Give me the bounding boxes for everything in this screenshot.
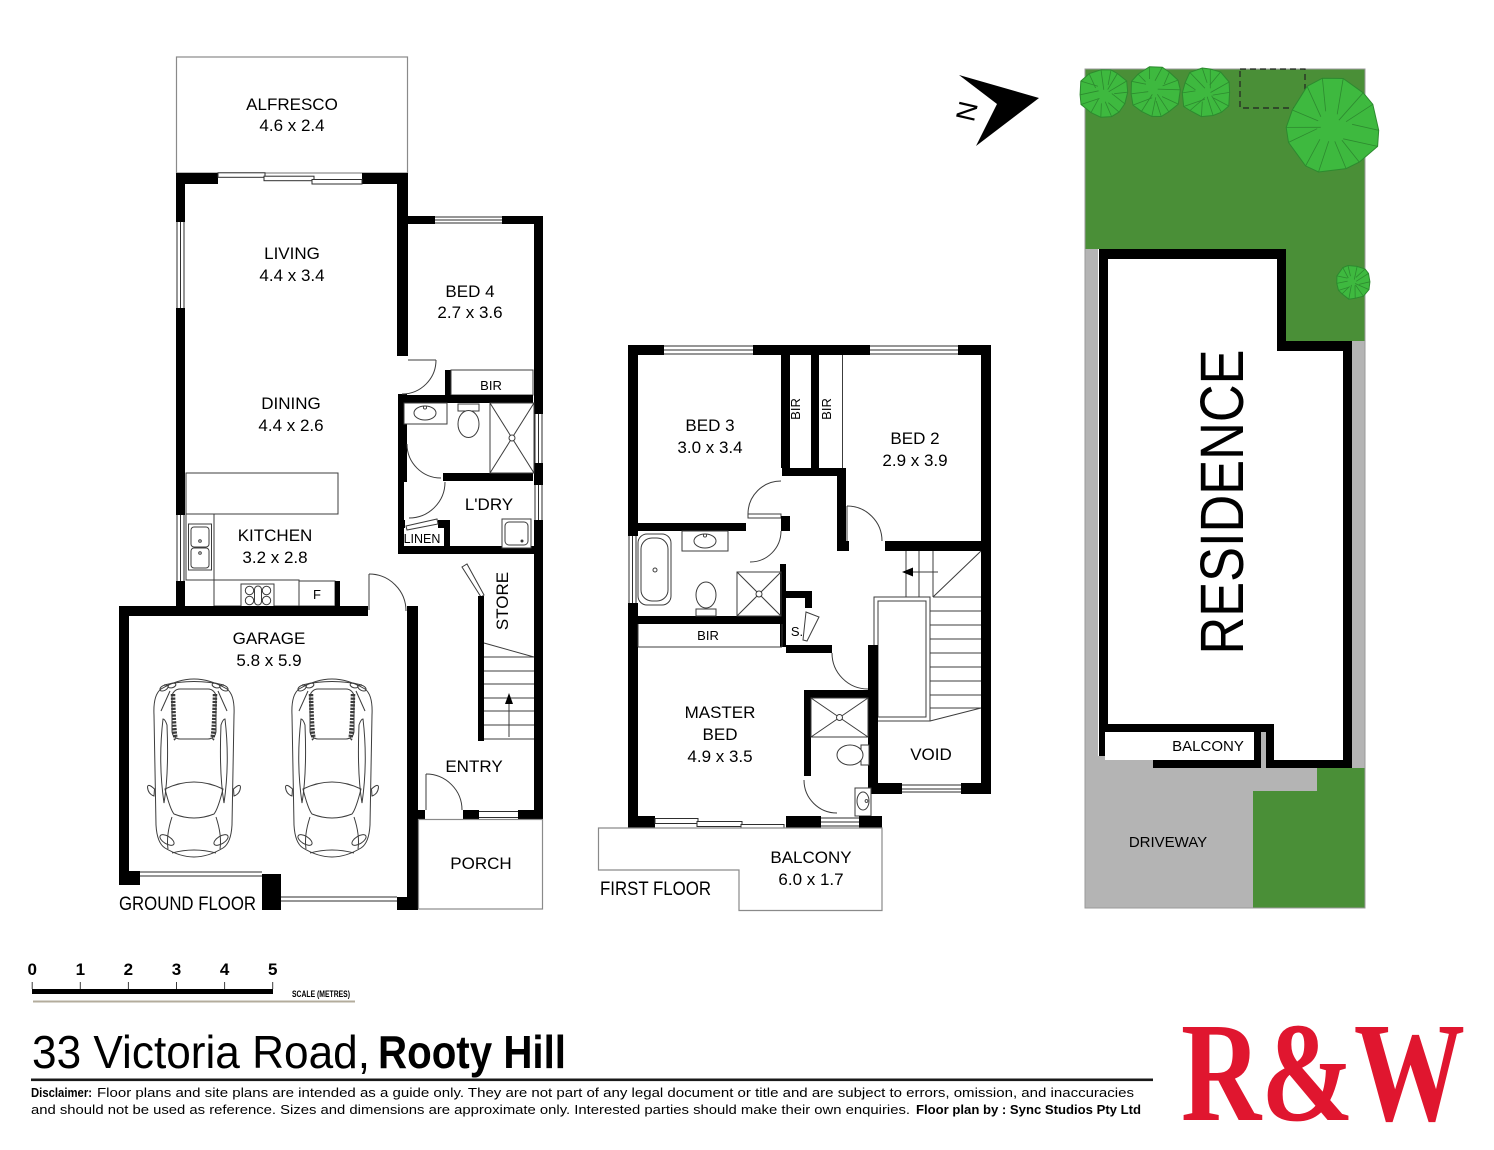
svg-text:PORCH: PORCH: [450, 854, 511, 873]
svg-text:KITCHEN: KITCHEN: [238, 526, 313, 545]
svg-text:LINEN: LINEN: [404, 532, 441, 546]
svg-text:GARAGE: GARAGE: [233, 629, 306, 648]
svg-text:VOID: VOID: [910, 745, 952, 764]
svg-text:2.9 x 3.9: 2.9 x 3.9: [882, 451, 947, 470]
svg-text:FIRST FLOOR: FIRST FLOOR: [600, 879, 711, 900]
svg-text:3.2 x 2.8: 3.2 x 2.8: [242, 548, 307, 567]
svg-text:4.4 x 3.4: 4.4 x 3.4: [259, 266, 324, 285]
svg-text:F: F: [313, 587, 321, 602]
svg-text:33 Victoria Road,: 33 Victoria Road,: [32, 1026, 370, 1078]
svg-text:5: 5: [268, 960, 277, 979]
svg-text:DRIVEWAY: DRIVEWAY: [1129, 834, 1207, 851]
svg-text:3.0 x 3.4: 3.0 x 3.4: [677, 438, 742, 457]
svg-text:4.4 x 2.6: 4.4 x 2.6: [258, 416, 323, 435]
svg-text:0: 0: [27, 960, 36, 979]
svg-text:S.: S.: [791, 624, 803, 639]
svg-text:BIR: BIR: [788, 398, 803, 420]
svg-text:BALCONY: BALCONY: [770, 848, 851, 867]
svg-text:STORE: STORE: [493, 572, 512, 630]
svg-text:GROUND FLOOR: GROUND FLOOR: [119, 894, 256, 915]
svg-text:R&W: R&W: [1181, 993, 1465, 1150]
svg-text:Floor plan by : Sync Studios P: Floor plan by : Sync Studios Pty Ltd: [916, 1102, 1141, 1117]
svg-text:MASTER: MASTER: [685, 703, 756, 722]
svg-text:Floor plans and site plans are: Floor plans and site plans are intended …: [97, 1085, 1135, 1100]
svg-text:2.7 x 3.6: 2.7 x 3.6: [437, 303, 502, 322]
svg-text:ENTRY: ENTRY: [445, 757, 502, 776]
svg-text:Rooty Hill: Rooty Hill: [378, 1026, 566, 1078]
svg-text:BED 2: BED 2: [890, 429, 939, 448]
svg-text:and should not be used as refe: and should not be used as reference. Siz…: [31, 1102, 910, 1117]
svg-text:4.9 x 3.5: 4.9 x 3.5: [687, 747, 752, 766]
svg-text:RESIDENCE: RESIDENCE: [1188, 350, 1256, 655]
svg-text:Disclaimer:: Disclaimer:: [31, 1085, 92, 1100]
svg-text:BED: BED: [703, 725, 738, 744]
svg-text:DINING: DINING: [261, 394, 321, 413]
svg-text:BED 3: BED 3: [685, 416, 734, 435]
svg-text:BED 4: BED 4: [445, 282, 494, 301]
svg-text:5.8 x 5.9: 5.8 x 5.9: [236, 651, 301, 670]
svg-text:BALCONY: BALCONY: [1172, 738, 1244, 755]
svg-text:ALFRESCO: ALFRESCO: [246, 95, 338, 114]
svg-text:L'DRY: L'DRY: [465, 495, 513, 514]
svg-text:4: 4: [220, 960, 230, 979]
svg-text:BIR: BIR: [819, 398, 834, 420]
svg-text:1: 1: [76, 960, 85, 979]
svg-text:BIR: BIR: [697, 628, 719, 643]
svg-text:3: 3: [172, 960, 181, 979]
svg-text:LIVING: LIVING: [264, 244, 320, 263]
svg-text:2: 2: [124, 960, 133, 979]
svg-text:BIR: BIR: [480, 378, 502, 393]
svg-text:SCALE (METRES): SCALE (METRES): [292, 989, 350, 1000]
svg-text:4.6 x 2.4: 4.6 x 2.4: [259, 116, 324, 135]
svg-text:6.0 x 1.7: 6.0 x 1.7: [778, 870, 843, 889]
